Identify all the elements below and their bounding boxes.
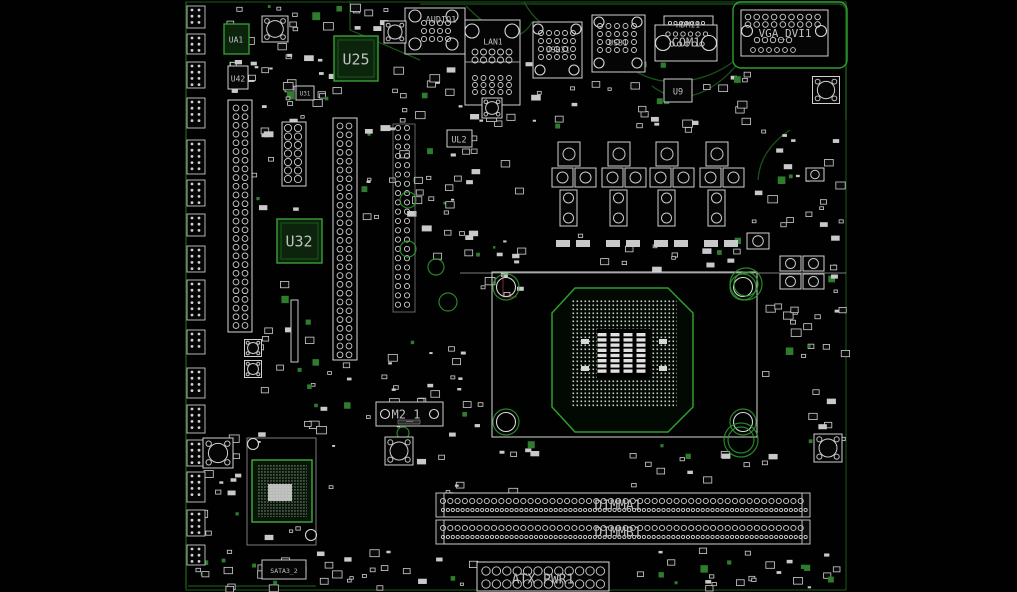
label-usb31: USB31 bbox=[546, 46, 570, 55]
label-hdmi1: HDMI1 bbox=[676, 21, 700, 30]
dimm-a1-latch-right bbox=[802, 493, 810, 517]
dimm-a1-latch-left bbox=[436, 493, 444, 517]
label-sata3-2: SATA3_2 bbox=[270, 567, 297, 575]
cpu-side-pad bbox=[581, 366, 589, 371]
pcb-board-view: UA1 U42 U31 U25 AUDIO1 LAN1 USB31 USB1 H… bbox=[0, 0, 1017, 592]
label-lan1: LAN1 bbox=[483, 38, 502, 47]
label-atx-pwr1: ATX PWR1 bbox=[512, 573, 575, 588]
cpu-side-pad bbox=[581, 339, 589, 344]
cpu-side-pad bbox=[659, 366, 667, 371]
pci-slot-1 bbox=[228, 100, 252, 332]
label-com1: COM1 bbox=[672, 36, 701, 50]
label-u25: U25 bbox=[342, 51, 369, 69]
label-u42: U42 bbox=[231, 75, 246, 84]
pci-slot-2 bbox=[333, 118, 357, 360]
label-usb1: USB1 bbox=[608, 39, 627, 48]
label-m2-1: M2_1 bbox=[392, 408, 421, 422]
label-vga-dvi1: VGA_DVI1 bbox=[759, 27, 812, 40]
motherboard-diagram: UA1 U42 U31 U25 AUDIO1 LAN1 USB31 USB1 H… bbox=[0, 0, 1017, 592]
label-audio1: AUDIO1 bbox=[426, 16, 457, 26]
label-u9: U9 bbox=[673, 88, 683, 98]
chipset-bga bbox=[247, 438, 316, 545]
dimm-b1-latch-left bbox=[436, 520, 444, 544]
label-ul2: UL2 bbox=[451, 136, 466, 146]
label-u32: U32 bbox=[285, 233, 312, 251]
cpu-side-pad bbox=[659, 339, 667, 344]
chipset-center-pad bbox=[268, 484, 292, 501]
label-dimmb1: DIMMB1 bbox=[595, 526, 642, 541]
label-ua1: UA1 bbox=[229, 36, 244, 45]
edge-slot bbox=[291, 300, 298, 362]
dimm-b1-latch-right bbox=[802, 520, 810, 544]
label-dimma1: DIMMA1 bbox=[595, 499, 642, 514]
label-u31: U31 bbox=[300, 91, 311, 98]
